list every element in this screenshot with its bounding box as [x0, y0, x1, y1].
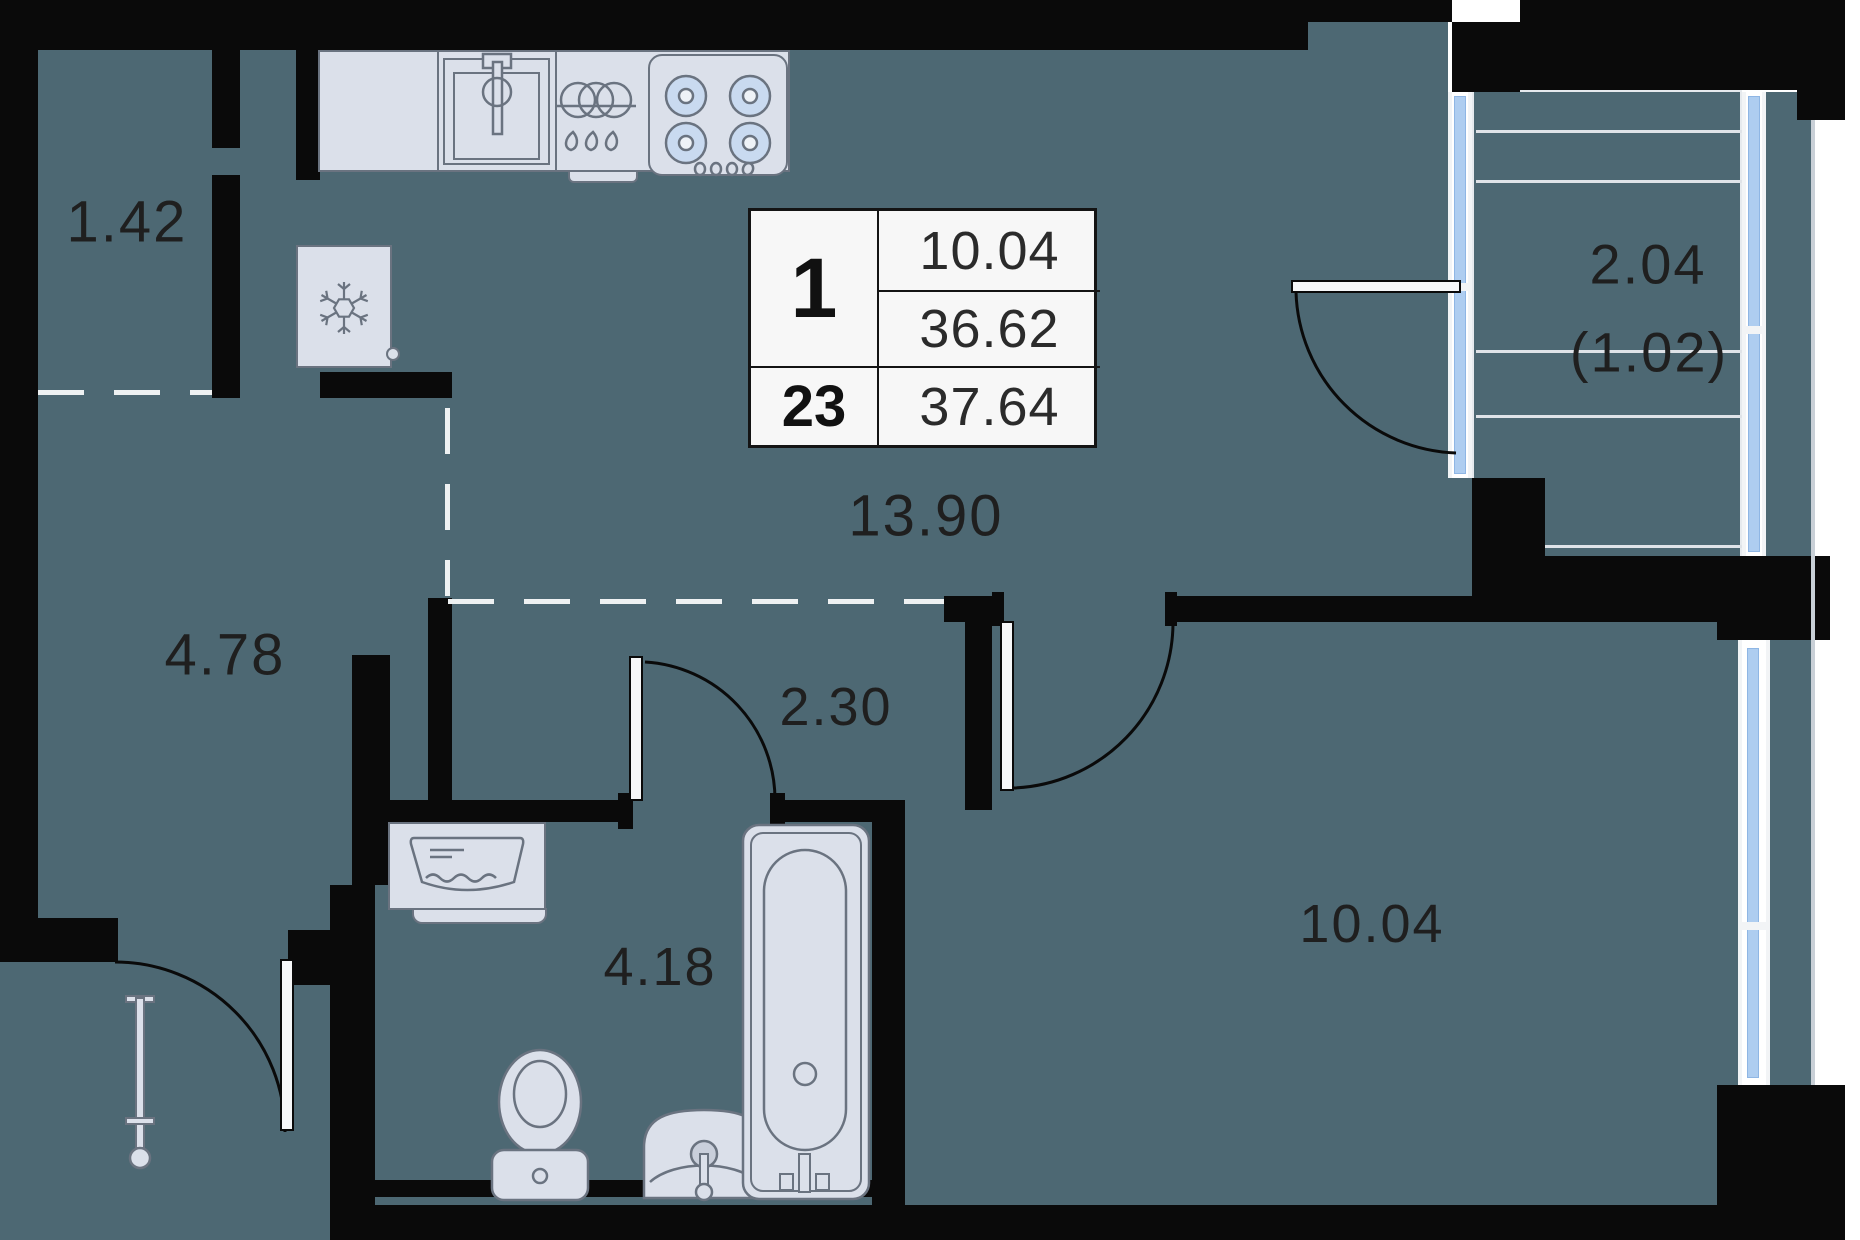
door-entrance — [0, 0, 1860, 1240]
rooms-count: 1 — [751, 211, 877, 366]
room-label-corridor: 2.30 — [779, 676, 892, 738]
floor-plan: 1.42 4.78 13.90 2.30 4.18 10.04 2.04 (1.… — [0, 0, 1860, 1240]
living-area-value: 10.04 — [879, 211, 1100, 290]
room-label-balcony: 2.04 — [1590, 232, 1707, 297]
unit-info-box: 1 23 10.04 36.62 37.64 — [748, 208, 1097, 448]
room-label-hallway: 4.78 — [165, 622, 286, 689]
room-label-storage: 1.42 — [67, 189, 188, 256]
total-area-value: 37.64 — [879, 368, 1100, 445]
room-label-balcony-note: (1.02) — [1570, 320, 1728, 385]
floor-number: 23 — [751, 368, 877, 445]
room-label-bathroom: 4.18 — [603, 936, 716, 998]
room-label-bedroom: 10.04 — [1299, 893, 1444, 955]
area-without-balcony-value: 36.62 — [879, 292, 1100, 366]
room-label-kitchen-living: 13.90 — [848, 483, 1003, 550]
